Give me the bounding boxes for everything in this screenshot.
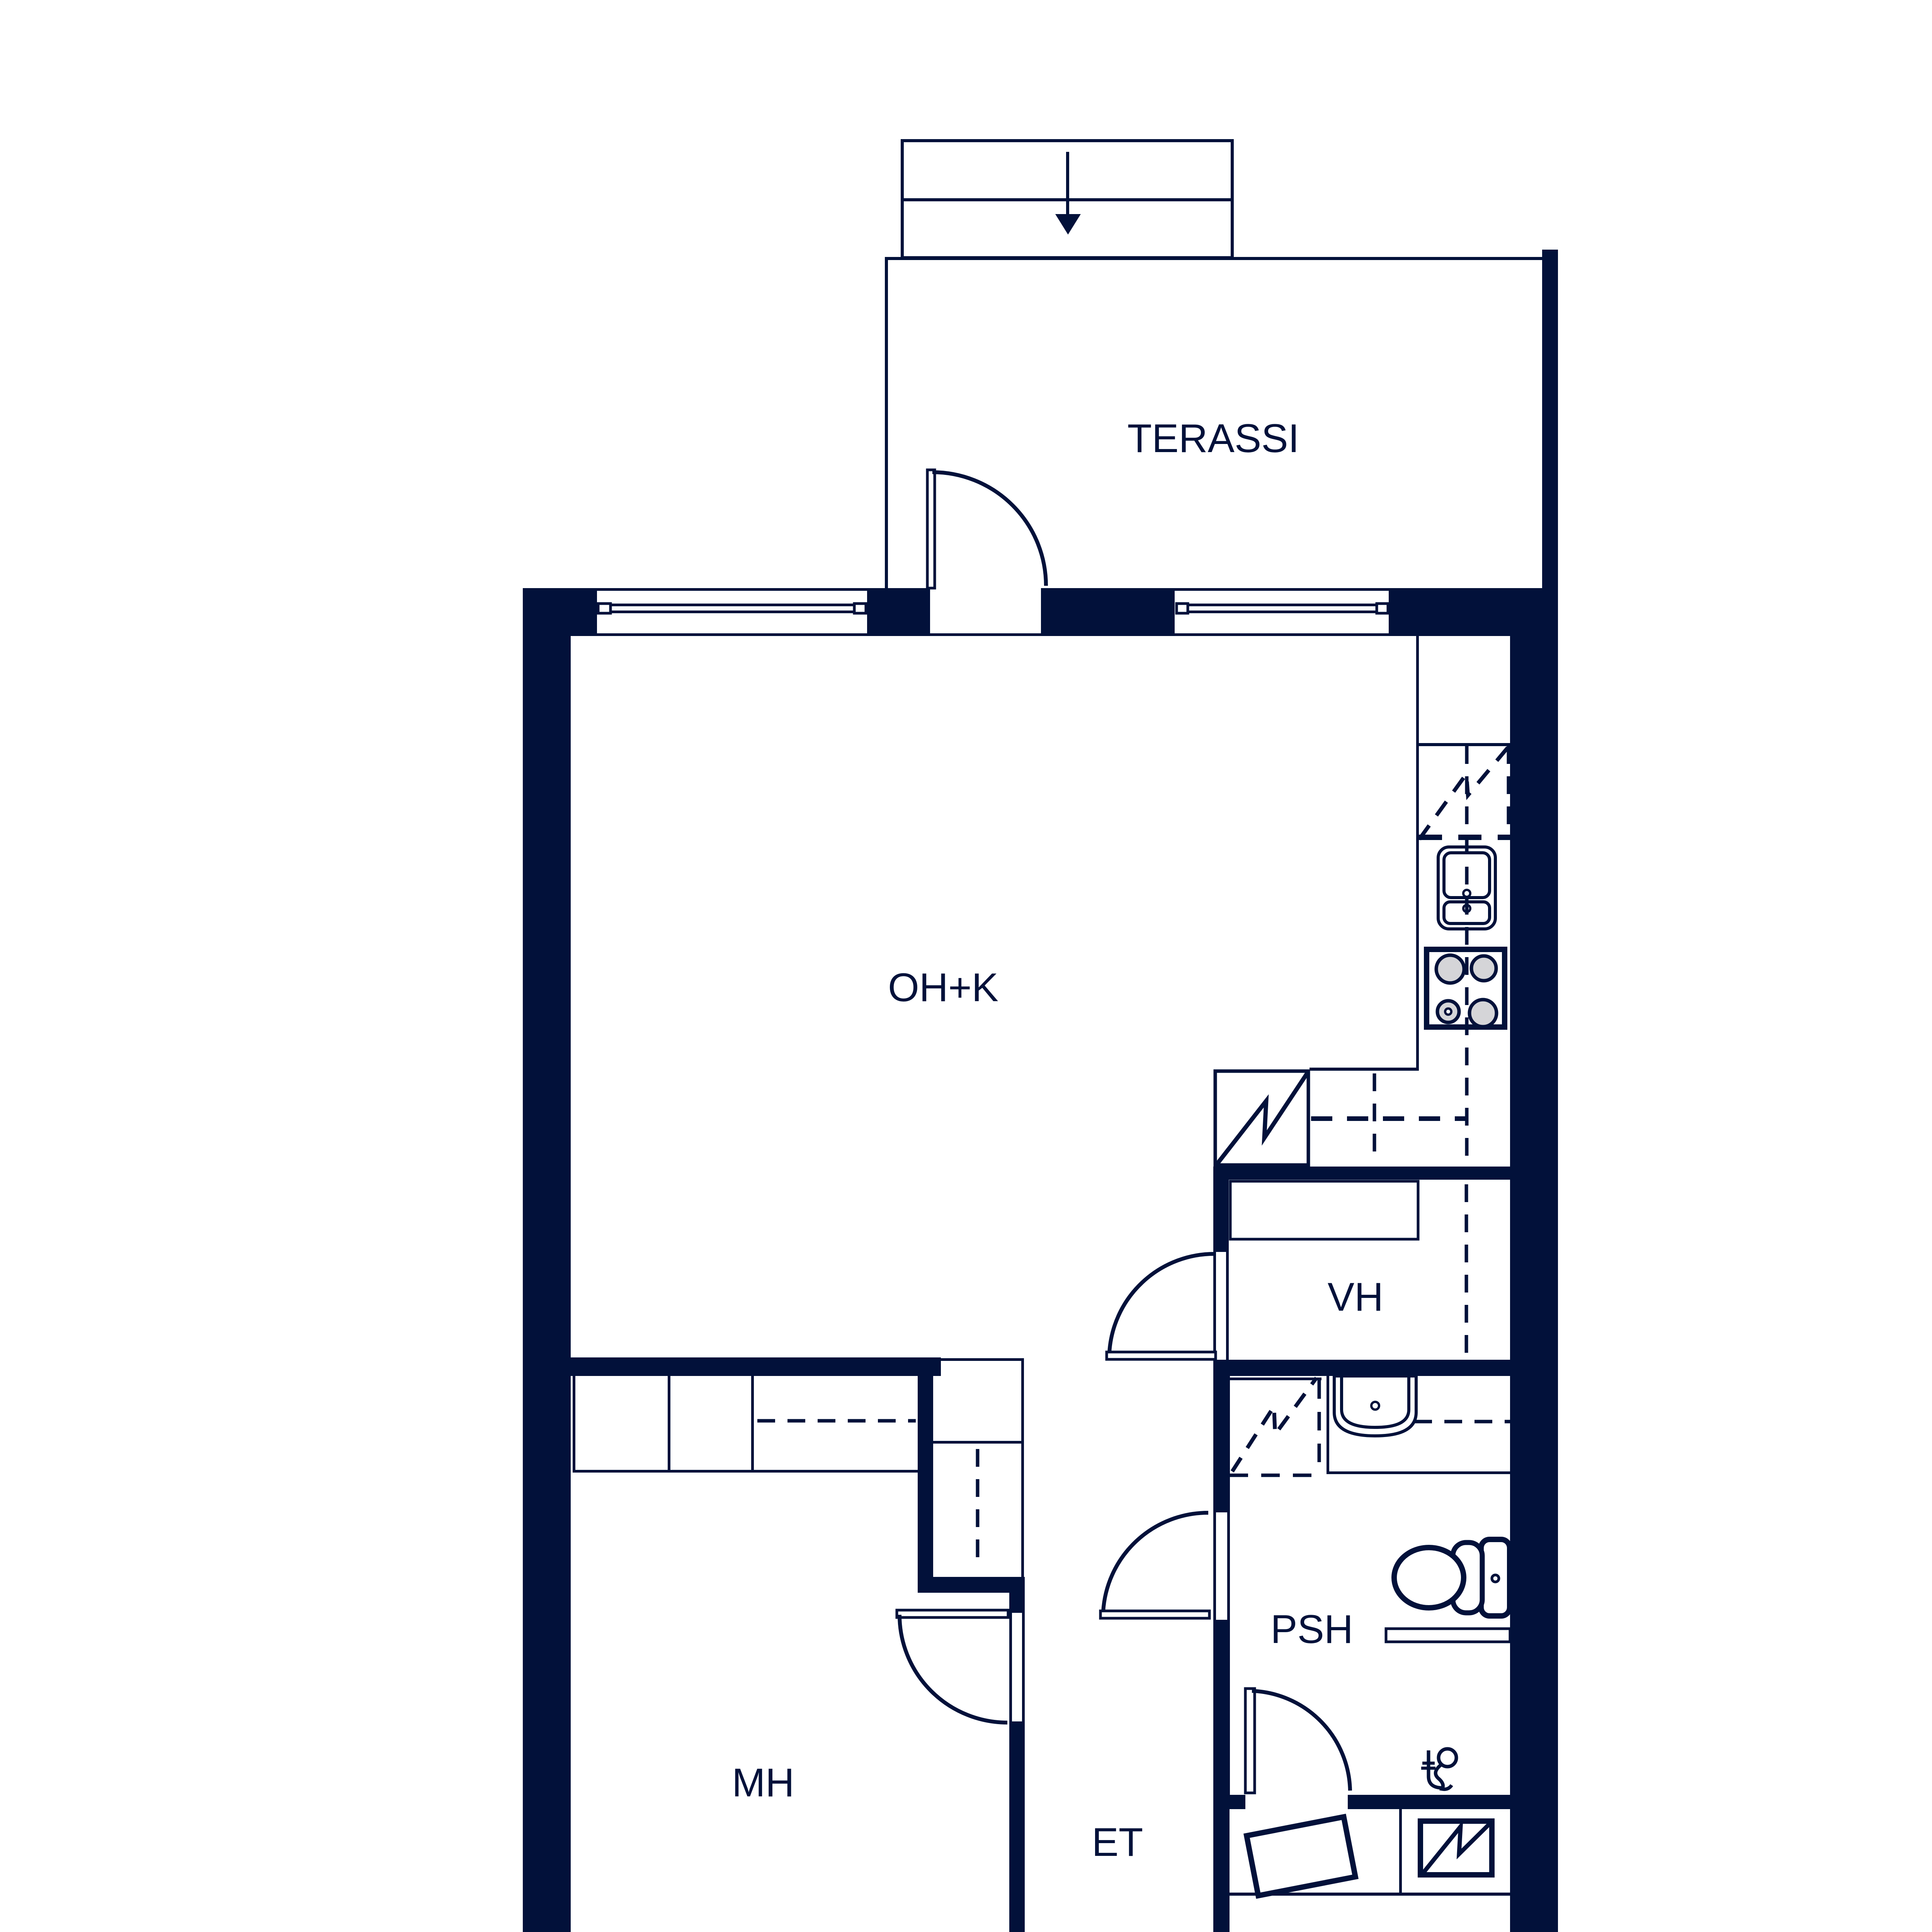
svg-text:PSH: PSH [1270, 1607, 1353, 1652]
svg-text:VH: VH [1328, 1275, 1383, 1320]
svg-text:ET: ET [1092, 1820, 1143, 1865]
svg-text:MH: MH [732, 1760, 794, 1805]
svg-text:TERASSI: TERASSI [1128, 416, 1299, 461]
svg-text:OH+K: OH+K [888, 965, 998, 1010]
